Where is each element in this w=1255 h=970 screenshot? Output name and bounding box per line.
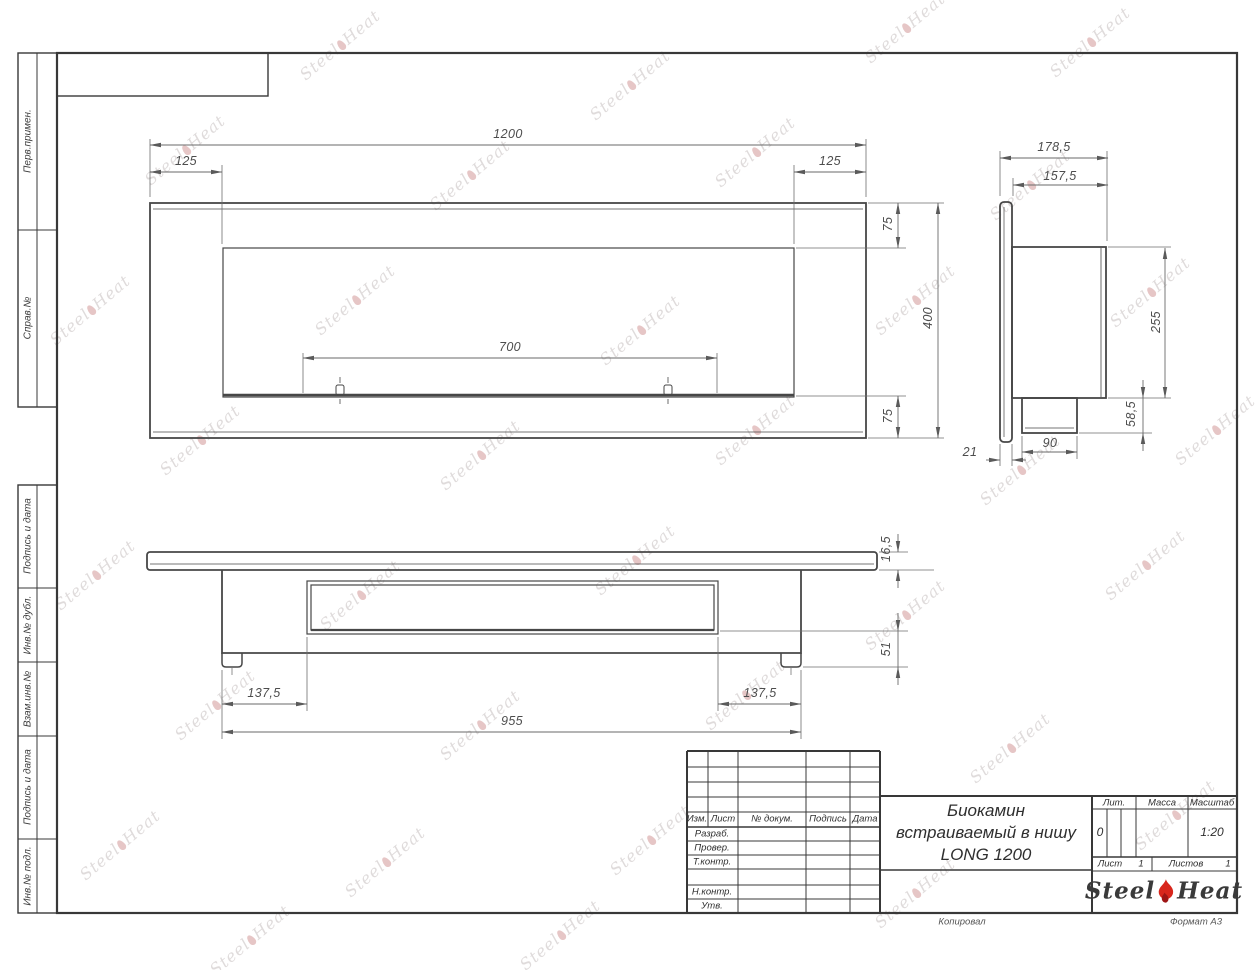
dim-side-ledge-width: 90 — [1043, 436, 1058, 450]
dim-side-depth-body: 157,5 — [1043, 169, 1076, 183]
dim-bottom-foot: 51 — [879, 642, 893, 657]
drawing-sheet: SteelHeatSteelHeatSteelHeatSteelHeatStee… — [0, 0, 1255, 970]
format-note: Формат А3 — [1170, 917, 1222, 928]
dim-bottom-right: 137,5 — [743, 686, 776, 700]
frame-label-inv-podl: Инв.№ подл. — [23, 846, 34, 905]
dim-front-opening: 700 — [499, 340, 521, 354]
rev-col-list: Лист — [711, 814, 735, 825]
rev-col-data: Дата — [852, 814, 877, 825]
frame-label-podpis-data-1: Подпись и дата — [23, 498, 34, 574]
side-view — [1000, 202, 1106, 442]
dim-front-top: 75 — [881, 217, 895, 232]
sheet-label: Лист — [1098, 859, 1122, 870]
sheets-value: 1 — [1225, 859, 1230, 870]
dim-front-bottom: 75 — [881, 409, 895, 424]
role-prover: Провер. — [694, 843, 729, 854]
copied-note: Копировал — [938, 917, 985, 928]
dim-side-flange: 21 — [963, 445, 978, 459]
frame-label-podpis-data-2: Подпись и дата — [23, 749, 34, 825]
flame-icon — [1157, 879, 1175, 904]
sheet-value: 1 — [1138, 859, 1143, 870]
frame-label-perv-primen: Перв.примен. — [23, 109, 34, 173]
frame-label-vzam-inv: Взам.инв.№ — [23, 671, 34, 727]
lit-value: 0 — [1097, 825, 1104, 839]
scale-label: Масштаб — [1190, 798, 1234, 809]
dim-front-height: 400 — [921, 307, 935, 329]
bottom-view — [147, 552, 877, 675]
role-tkontr: Т.контр. — [693, 857, 731, 868]
role-utv: Утв. — [701, 901, 723, 912]
doc-title-line2: встраиваемый в нишу — [896, 823, 1076, 843]
sheets-label: Листов — [1169, 859, 1204, 870]
rev-col-izm: Изм. — [687, 814, 707, 825]
doc-title-line1: Биокамин — [947, 801, 1025, 821]
dim-side-ledge-height: 58,5 — [1124, 401, 1138, 427]
role-nkontr: Н.контр. — [692, 887, 732, 898]
rev-col-podpis: Подпись — [809, 814, 847, 825]
dim-bottom-flange: 16,5 — [879, 536, 893, 562]
logo-word-heat: Heat — [1177, 878, 1243, 905]
steel-heat-logo: Steel Heat — [1085, 878, 1243, 905]
dim-front-right: 125 — [819, 154, 841, 168]
dim-front-left: 125 — [175, 154, 197, 168]
frame-label-inv-dubl: Инв.№ дубл. — [23, 596, 34, 655]
frame-label-sprav-no: Справ.№ — [23, 297, 34, 340]
dim-bottom-length: 955 — [501, 714, 523, 728]
role-razrab: Разраб. — [695, 829, 729, 840]
front-view — [150, 203, 866, 438]
dim-side-depth-total: 178,5 — [1037, 140, 1070, 154]
extension-lines — [150, 139, 1171, 739]
doc-title-line3: LONG 1200 — [941, 845, 1032, 865]
dim-front-total: 1200 — [493, 127, 522, 141]
rev-col-dokum: № докум. — [751, 814, 793, 825]
mass-label: Масса — [1148, 798, 1176, 809]
scale-value: 1:20 — [1200, 825, 1223, 839]
dim-bottom-left: 137,5 — [247, 686, 280, 700]
lit-label: Лит. — [1103, 798, 1125, 809]
dim-side-height: 255 — [1149, 311, 1163, 333]
logo-word-steel: Steel — [1085, 878, 1155, 905]
